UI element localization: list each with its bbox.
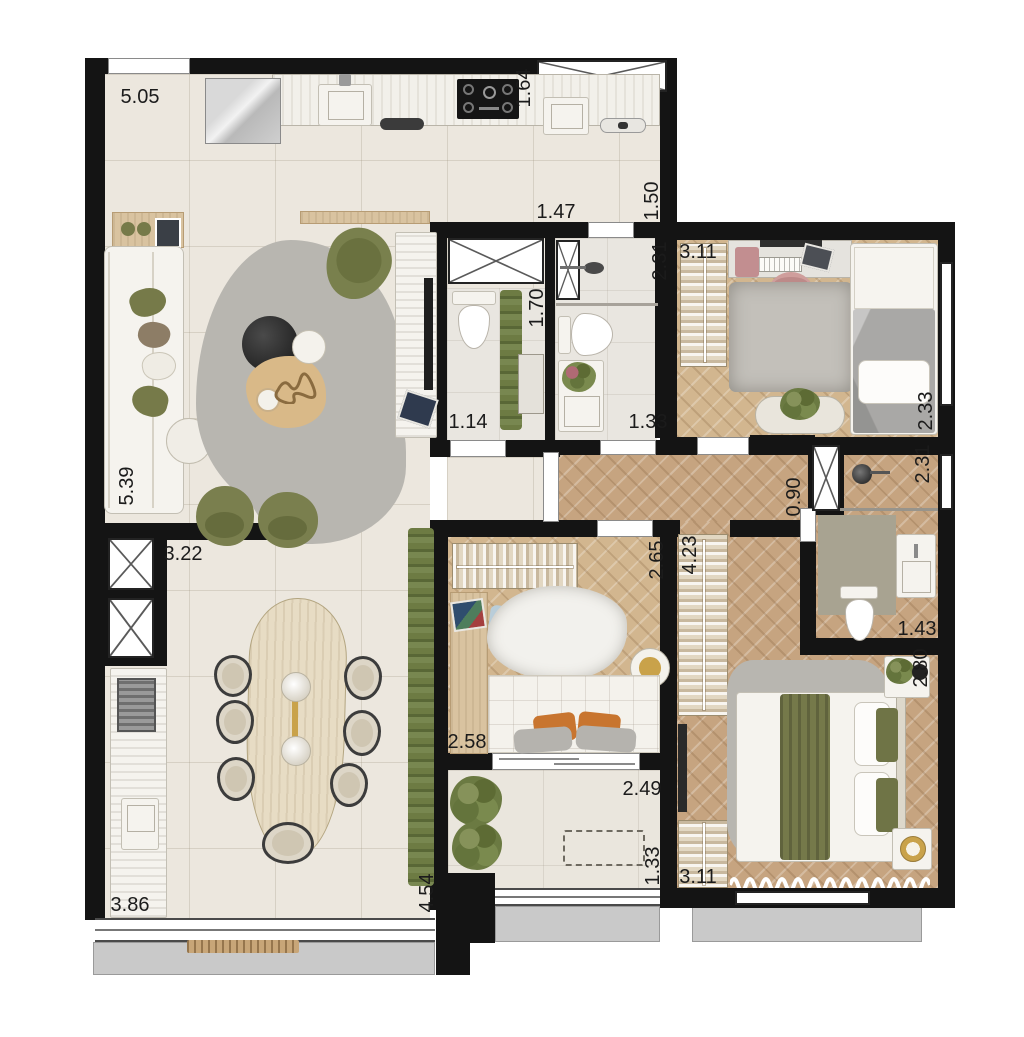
dimension-label-terrace-width: 3.86	[111, 895, 150, 915]
dimension-label-bathroom-2-shower-depth: 2.31	[650, 242, 670, 281]
dimension-label-living-depth: 5.39	[117, 467, 137, 506]
dimension-label-lavabo-width: 1.14	[449, 412, 488, 432]
dimension-label-bedroom-1-width: 3.11	[679, 242, 716, 262]
dimension-labels-layer: 5.051.641.471.502.313.112.331.701.141.33…	[0, 0, 1024, 1037]
dimension-label-hall-passage: 1.47	[537, 202, 576, 222]
dimension-label-balcony-depth: 1.33	[643, 847, 663, 886]
dimension-label-master-bedroom-depth: 2.80	[911, 649, 931, 688]
dimension-label-master-bath-shower-depth: 2.31	[913, 445, 933, 484]
dimension-label-terrace-depth: 4.54	[417, 874, 437, 913]
dimension-label-balcony-width: 2.49	[623, 779, 662, 799]
dimension-label-kitchen-window: 1.64	[514, 69, 534, 108]
floor-plan: 5.051.641.471.502.313.112.331.701.141.33…	[0, 0, 1024, 1037]
dimension-label-corridor-width: 0.90	[784, 478, 804, 517]
dimension-label-bedroom-1-depth: 2.33	[916, 392, 936, 431]
dimension-label-bedroom-2-width: 2.58	[448, 732, 487, 752]
dimension-label-dining-width: 3.22	[164, 544, 203, 564]
dimension-label-bedroom-2-depth: 2.65	[647, 541, 667, 580]
dimension-label-master-wardrobe-length: 4.23	[680, 536, 700, 575]
dimension-label-living-kitchen-width: 5.05	[121, 87, 160, 107]
dimension-label-master-bedroom-width: 3.11	[679, 867, 716, 887]
dimension-label-kitchen-passage: 1.50	[642, 182, 662, 221]
dimension-label-bathroom-2-width: 1.33	[629, 412, 668, 432]
dimension-label-lavabo-depth: 1.70	[527, 289, 547, 328]
dimension-label-master-bathroom-width: 1.43	[898, 619, 937, 639]
